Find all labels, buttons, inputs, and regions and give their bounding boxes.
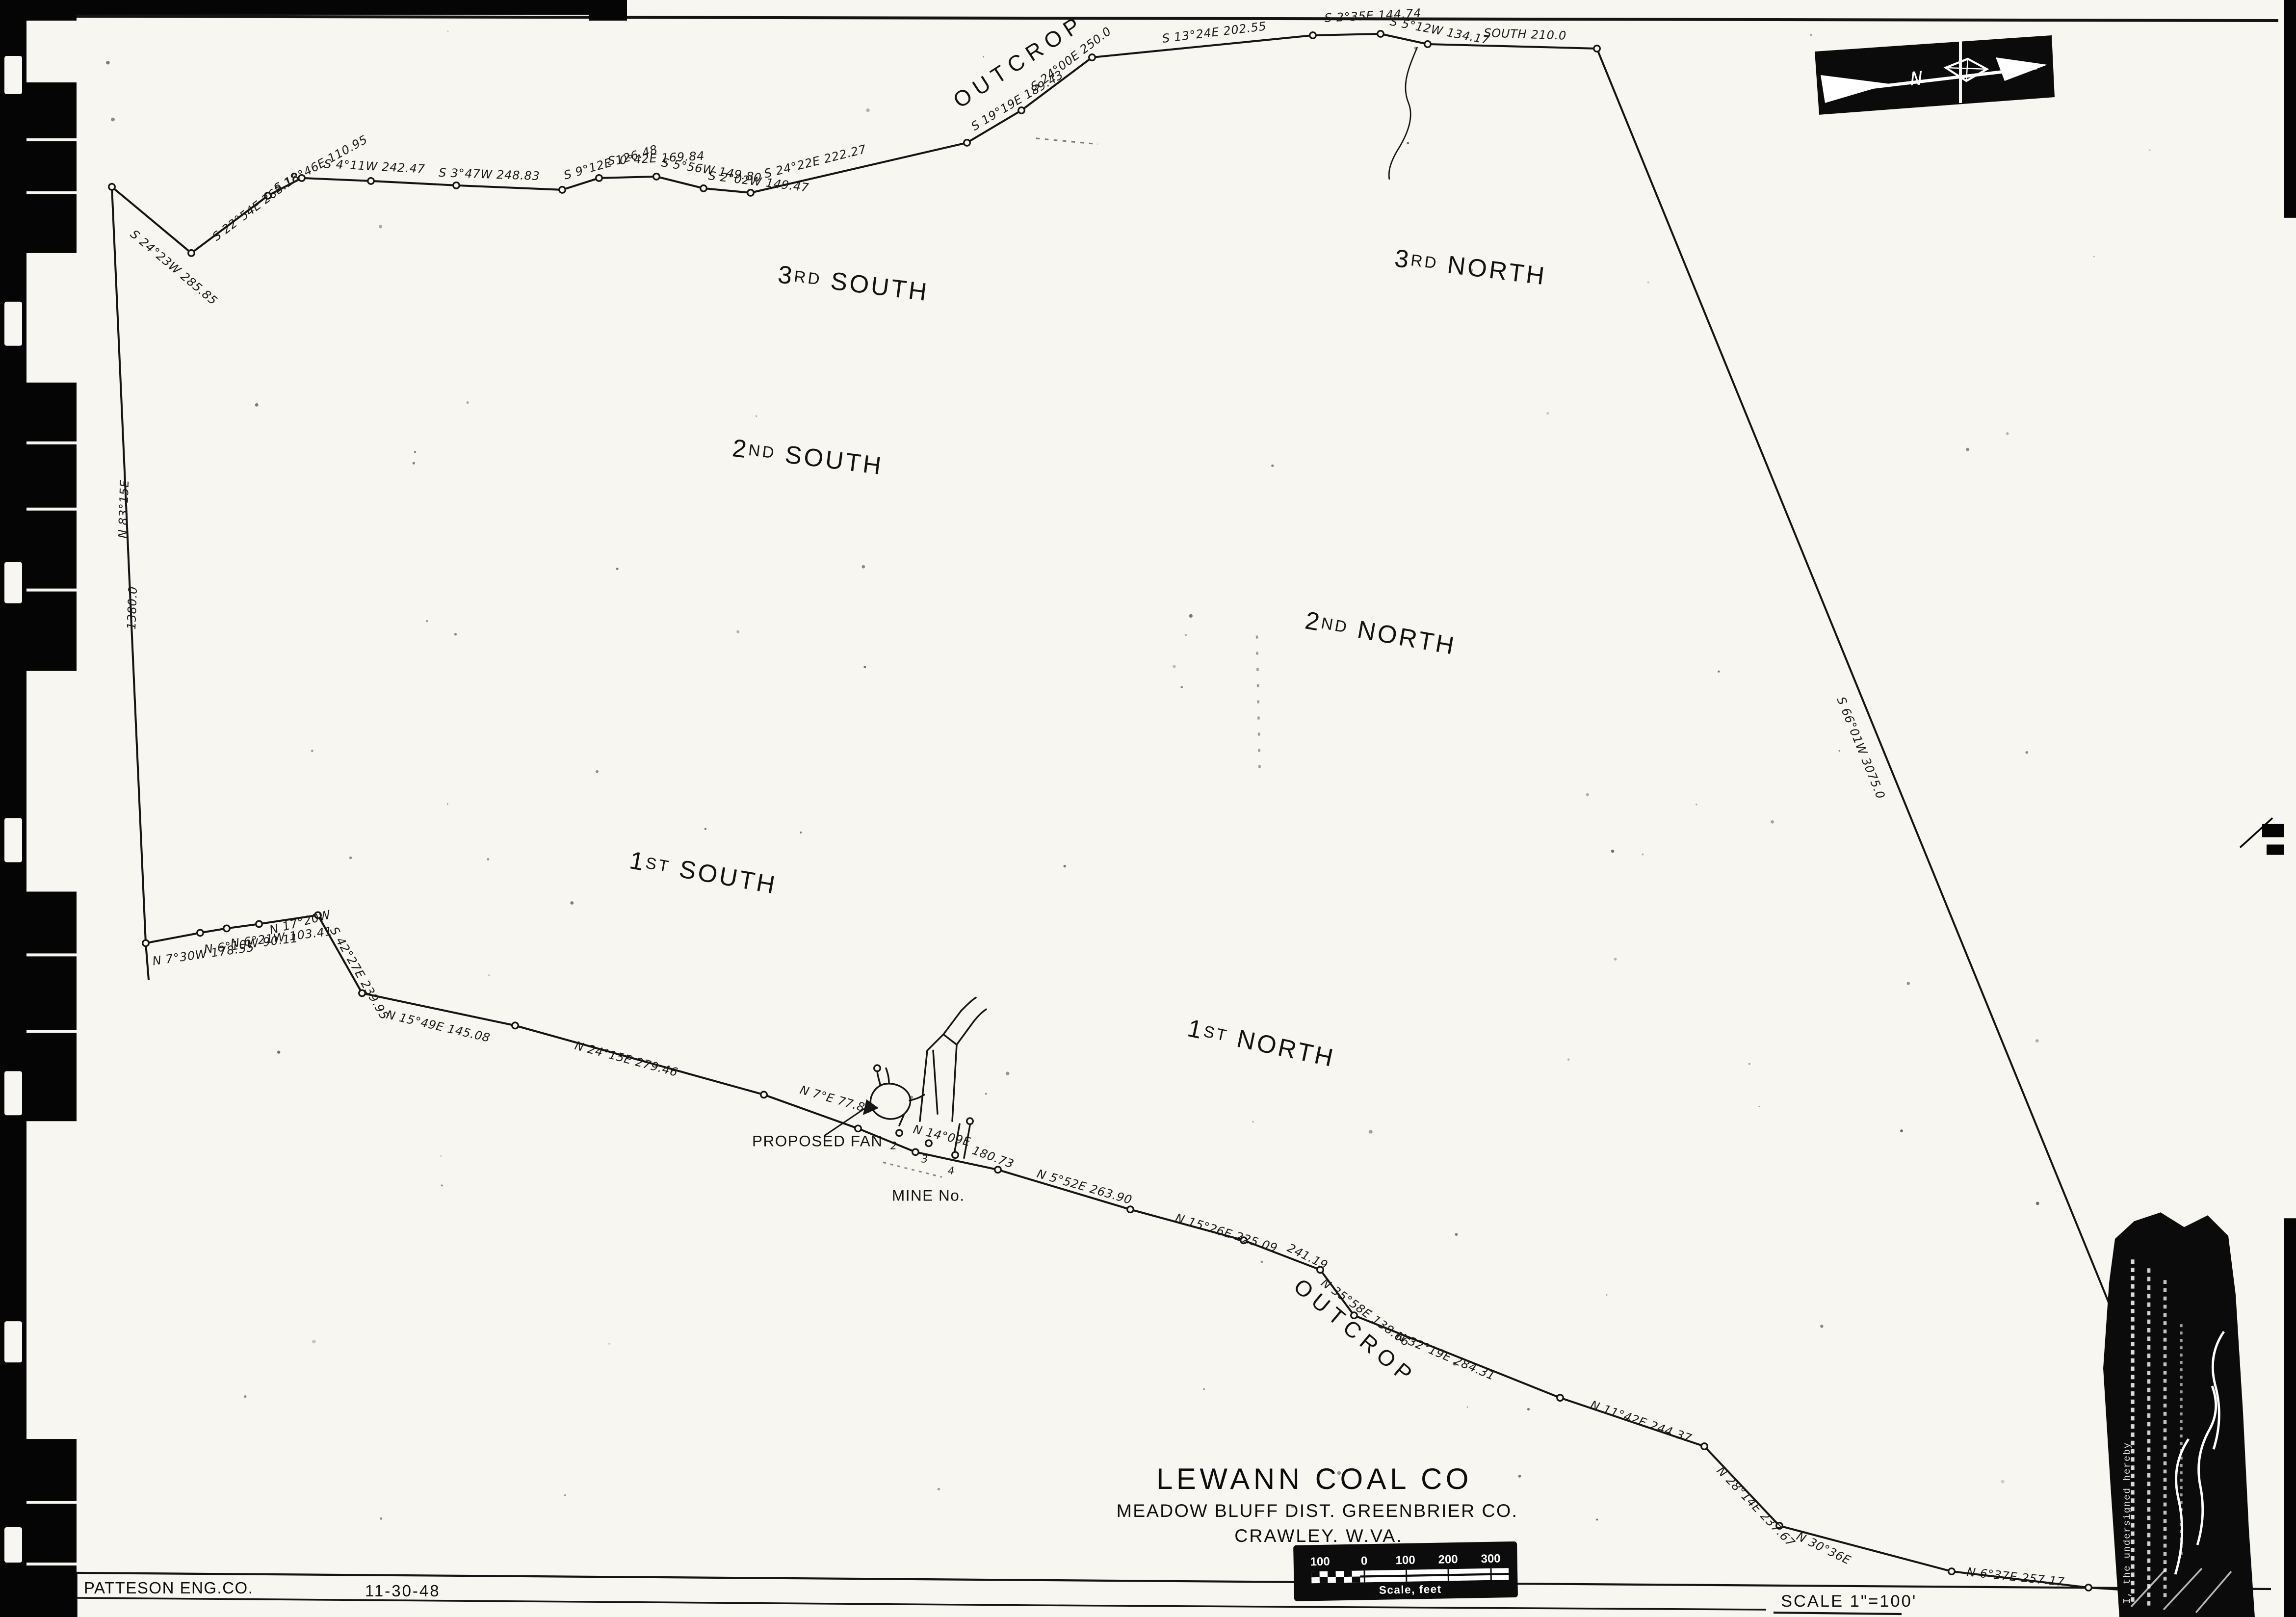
survey-station [197, 930, 204, 936]
left-film-strip [0, 0, 26, 1617]
scan-speck [1252, 1121, 1254, 1123]
scan-speck [704, 828, 706, 830]
survey-station [453, 183, 460, 189]
survey-station [1127, 1206, 1134, 1213]
scan-speck [1064, 865, 1066, 867]
scan-speck [1466, 1407, 1468, 1408]
station-number: 4 [948, 1165, 954, 1176]
scan-speck [244, 1395, 246, 1398]
scan-speck [1748, 1063, 1750, 1065]
survey-station [2086, 1585, 2092, 1591]
scale-tick-label: 300 [1481, 1552, 1501, 1565]
survey-station [855, 1125, 861, 1132]
right-edge-mark [2267, 844, 2284, 855]
scan-speck [1696, 804, 1697, 805]
survey-station [913, 1149, 919, 1155]
scale-bar-tick [1406, 1570, 1407, 1582]
right-edge-mark [2262, 824, 2284, 837]
scan-speck [608, 1343, 610, 1344]
scan-speck [379, 225, 382, 228]
scan-speck [380, 1517, 382, 1520]
scan-speck [1546, 412, 1549, 415]
scale-bar-checker [1328, 1571, 1336, 1577]
scan-speck [1261, 1261, 1263, 1263]
survey-station [1701, 1443, 1708, 1450]
scan-speck [1966, 448, 1969, 451]
scale-bar: 100 0 100 200 300 Scale, feet [1293, 1541, 1518, 1601]
scan-speck [414, 451, 416, 453]
survey-station [596, 175, 602, 182]
scan-speck [1586, 793, 1589, 796]
survey-station [1949, 1568, 1955, 1575]
scan-speck [2093, 256, 2095, 258]
scan-speck [1614, 958, 1617, 961]
scan-speck [106, 61, 110, 64]
survey-station [188, 250, 195, 257]
scan-speck [1611, 850, 1614, 853]
top-edge-blob [589, 0, 627, 21]
scan-speck [441, 1184, 443, 1186]
scan-speck [1203, 1388, 1205, 1390]
scan-speck [111, 118, 115, 122]
survey-station [1018, 107, 1025, 114]
survey-station [143, 940, 149, 946]
survey-station [748, 190, 754, 196]
survey-station [653, 174, 660, 180]
scan-speck [616, 568, 619, 570]
scan-speck [1810, 34, 1812, 36]
survey-station [952, 1152, 959, 1158]
scale-tick-label: 100 [1310, 1555, 1330, 1569]
scan-speck [736, 630, 739, 633]
right-film-strip-top [2284, 0, 2296, 218]
scan-speck [1185, 634, 1187, 636]
survey-station [964, 140, 970, 146]
scan-speck [1642, 854, 1644, 856]
scan-speck [1189, 614, 1193, 618]
survey-station [1425, 41, 1431, 48]
scale-bar-checker [1352, 1576, 1360, 1582]
scan-speck [861, 565, 865, 569]
map-subtitle-district: MEADOW BLUFF DIST. GREENBRIER CO. [1117, 1500, 1518, 1521]
scan-speck [426, 620, 428, 622]
survey-station [559, 187, 566, 193]
scale-bar-checker [1336, 1577, 1344, 1583]
scan-speck [2001, 1480, 2005, 1484]
scan-speck [413, 462, 415, 464]
north-arrow-panel-split [1959, 37, 1962, 103]
survey-station [256, 921, 262, 927]
scan-speck [596, 770, 599, 773]
station-number: 2 [890, 1140, 897, 1151]
scan-speck [564, 1494, 566, 1496]
scan-speck [1173, 665, 1176, 668]
survey-bearing-label: SOUTH 210.0 [1484, 26, 1567, 43]
scan-speck [863, 666, 866, 668]
scan-speck [488, 974, 490, 976]
scale-bar-tick [1447, 1569, 1449, 1581]
scan-speck [2006, 432, 2009, 435]
survey-station [224, 925, 230, 932]
scan-speck [1527, 1408, 1530, 1410]
scan-speck [1647, 282, 1649, 284]
top-left-edge-bar [0, 0, 606, 15]
scan-speck [1596, 1519, 1598, 1521]
scan-speck [985, 1093, 987, 1095]
survey-bearing-label: N 83°15E [116, 479, 131, 539]
scale-bar-caption: Scale, feet [1379, 1583, 1442, 1596]
certification-fragment: I, the undersigned hereby [2122, 1442, 2133, 1604]
scan-speck [1900, 1129, 1903, 1132]
survey-station [1378, 31, 1384, 37]
survey-station [1594, 46, 1600, 52]
survey-station [701, 185, 707, 192]
mine-map-sheet: 234 S 24°23W 285.85S 22°54E 268.18S 18°4… [0, 0, 2296, 1617]
scan-speck [1180, 686, 1183, 688]
scale-bar-tick [1364, 1570, 1365, 1582]
survey-station [874, 1065, 881, 1071]
scan-speck [2035, 1039, 2039, 1043]
scan-speck [447, 803, 448, 805]
scan-speck [2036, 1202, 2039, 1205]
scan-speck [1718, 671, 1720, 673]
scan-speck [1771, 820, 1774, 824]
map-subtitle-location: CRAWLEY. W.VA. [1234, 1525, 1403, 1546]
scan-speck [2149, 149, 2151, 151]
scan-speck [1455, 1233, 1458, 1236]
survey-bearing-label: 1380.0 [125, 586, 140, 629]
scale-bar-tick [1490, 1568, 1491, 1580]
scan-speck [570, 901, 574, 905]
scan-speck [983, 56, 984, 57]
survey-station [1089, 54, 1096, 61]
scan-speck [1369, 1130, 1373, 1134]
feature-label: PROPOSED FAN [752, 1132, 883, 1149]
scan-speck [467, 401, 469, 404]
scan-speck [1839, 750, 1840, 752]
scan-speck [1271, 465, 1274, 467]
scan-speck [1820, 1325, 1824, 1328]
scale-note-underline [1774, 1613, 1902, 1614]
scale-tick-label: 200 [1438, 1553, 1458, 1566]
map-title: LEWANN COAL CO [1156, 1462, 1472, 1495]
map-date: 11-30-48 [365, 1582, 441, 1600]
scan-speck [800, 832, 802, 834]
paper-background [0, 0, 2296, 1617]
scan-speck [440, 1155, 442, 1157]
scale-bar-checker [1344, 1571, 1352, 1577]
scale-bar-checker [1311, 1571, 1320, 1577]
scan-speck [311, 750, 313, 752]
certification-stamp: I, the undersigned hereby [2103, 1212, 2255, 1617]
engineer-credit: PATTESON ENG.CO. [84, 1579, 253, 1597]
scan-speck [756, 416, 757, 417]
right-film-strip-bottom [2284, 1218, 2296, 1617]
scan-speck [447, 30, 448, 32]
feature-label: MINE No. [892, 1186, 965, 1204]
scan-speck [866, 108, 869, 112]
station-number: 3 [921, 1153, 928, 1165]
survey-station [1557, 1395, 1564, 1401]
scan-speck [277, 1050, 280, 1053]
scan-speck [1006, 1071, 1009, 1075]
scan-speck [1407, 142, 1409, 144]
scan-speck [312, 1340, 316, 1344]
scale-tick-label: 100 [1395, 1554, 1415, 1567]
scan-speck [1567, 1059, 1569, 1061]
scan-speck [255, 403, 259, 407]
north-letter: N [1909, 67, 1924, 92]
survey-station [995, 1167, 1001, 1173]
survey-station [761, 1092, 767, 1098]
scan-speck [454, 633, 457, 635]
scan-speck [349, 857, 352, 859]
survey-station [1310, 32, 1316, 39]
survey-station [896, 1130, 903, 1136]
scan-speck [487, 858, 489, 861]
scan-speck [1606, 1294, 1608, 1296]
survey-station [368, 178, 374, 184]
scan-speck [1759, 1106, 1760, 1107]
scale-bar-checker [1320, 1577, 1328, 1583]
scale-tick-label: 0 [1361, 1554, 1368, 1567]
survey-station [967, 1118, 973, 1124]
scale-note: SCALE 1"=100' [1781, 1592, 1917, 1611]
scan-speck [1518, 1475, 1521, 1478]
scan-speck [938, 1488, 940, 1490]
scan-speck [1907, 982, 1910, 985]
scan-speck [2026, 751, 2029, 754]
survey-station [512, 1022, 519, 1029]
survey-station [109, 184, 115, 190]
survey-station [926, 1140, 932, 1147]
